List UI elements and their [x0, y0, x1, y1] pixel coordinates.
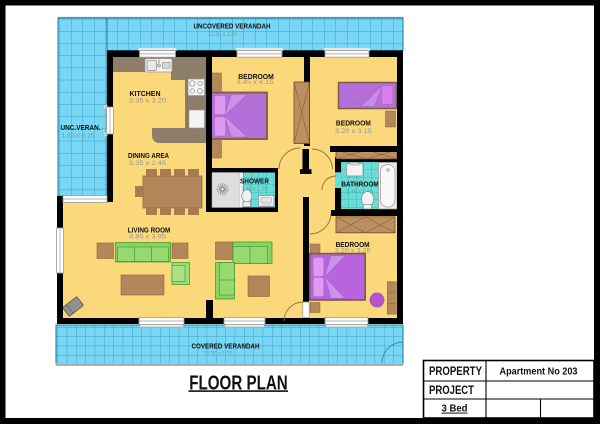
svg-text:UNC.VERAN.: UNC.VERAN. — [61, 125, 101, 132]
svg-text:3.45 x 4.15: 3.45 x 4.15 — [237, 79, 275, 86]
svg-text:COVERED VERANDAH: COVERED VERANDAH — [192, 341, 260, 350]
svg-text:12.50 x 1.20: 12.50 x 1.20 — [204, 350, 233, 357]
svg-text:3.35 x 3.20: 3.35 x 3.20 — [129, 97, 167, 104]
svg-text:Apartment No 203: Apartment No 203 — [500, 367, 578, 378]
svg-text:DINING AREA: DINING AREA — [128, 151, 169, 160]
svg-text:3 Bed: 3 Bed — [442, 404, 468, 415]
svg-text:3.20 x 3.15: 3.20 x 3.15 — [335, 128, 373, 135]
svg-text:BEDROOM: BEDROOM — [336, 118, 371, 127]
svg-text:12.50 x 1.20: 12.50 x 1.20 — [208, 31, 237, 38]
svg-text:3.35 x 2.45: 3.35 x 2.45 — [129, 160, 167, 167]
svg-text:8.80 x 3.95: 8.80 x 3.95 — [129, 233, 167, 240]
svg-text:PROPERTY: PROPERTY — [429, 366, 482, 378]
svg-text:1.80 x 5.25: 1.80 x 5.25 — [62, 133, 96, 140]
svg-text:UNCOVERED VERANDAH: UNCOVERED VERANDAH — [194, 21, 271, 30]
svg-text:PROJECT: PROJECT — [429, 385, 474, 397]
svg-text:SHOWER: SHOWER — [240, 177, 270, 186]
svg-text:BATHROOM: BATHROOM — [341, 182, 379, 189]
